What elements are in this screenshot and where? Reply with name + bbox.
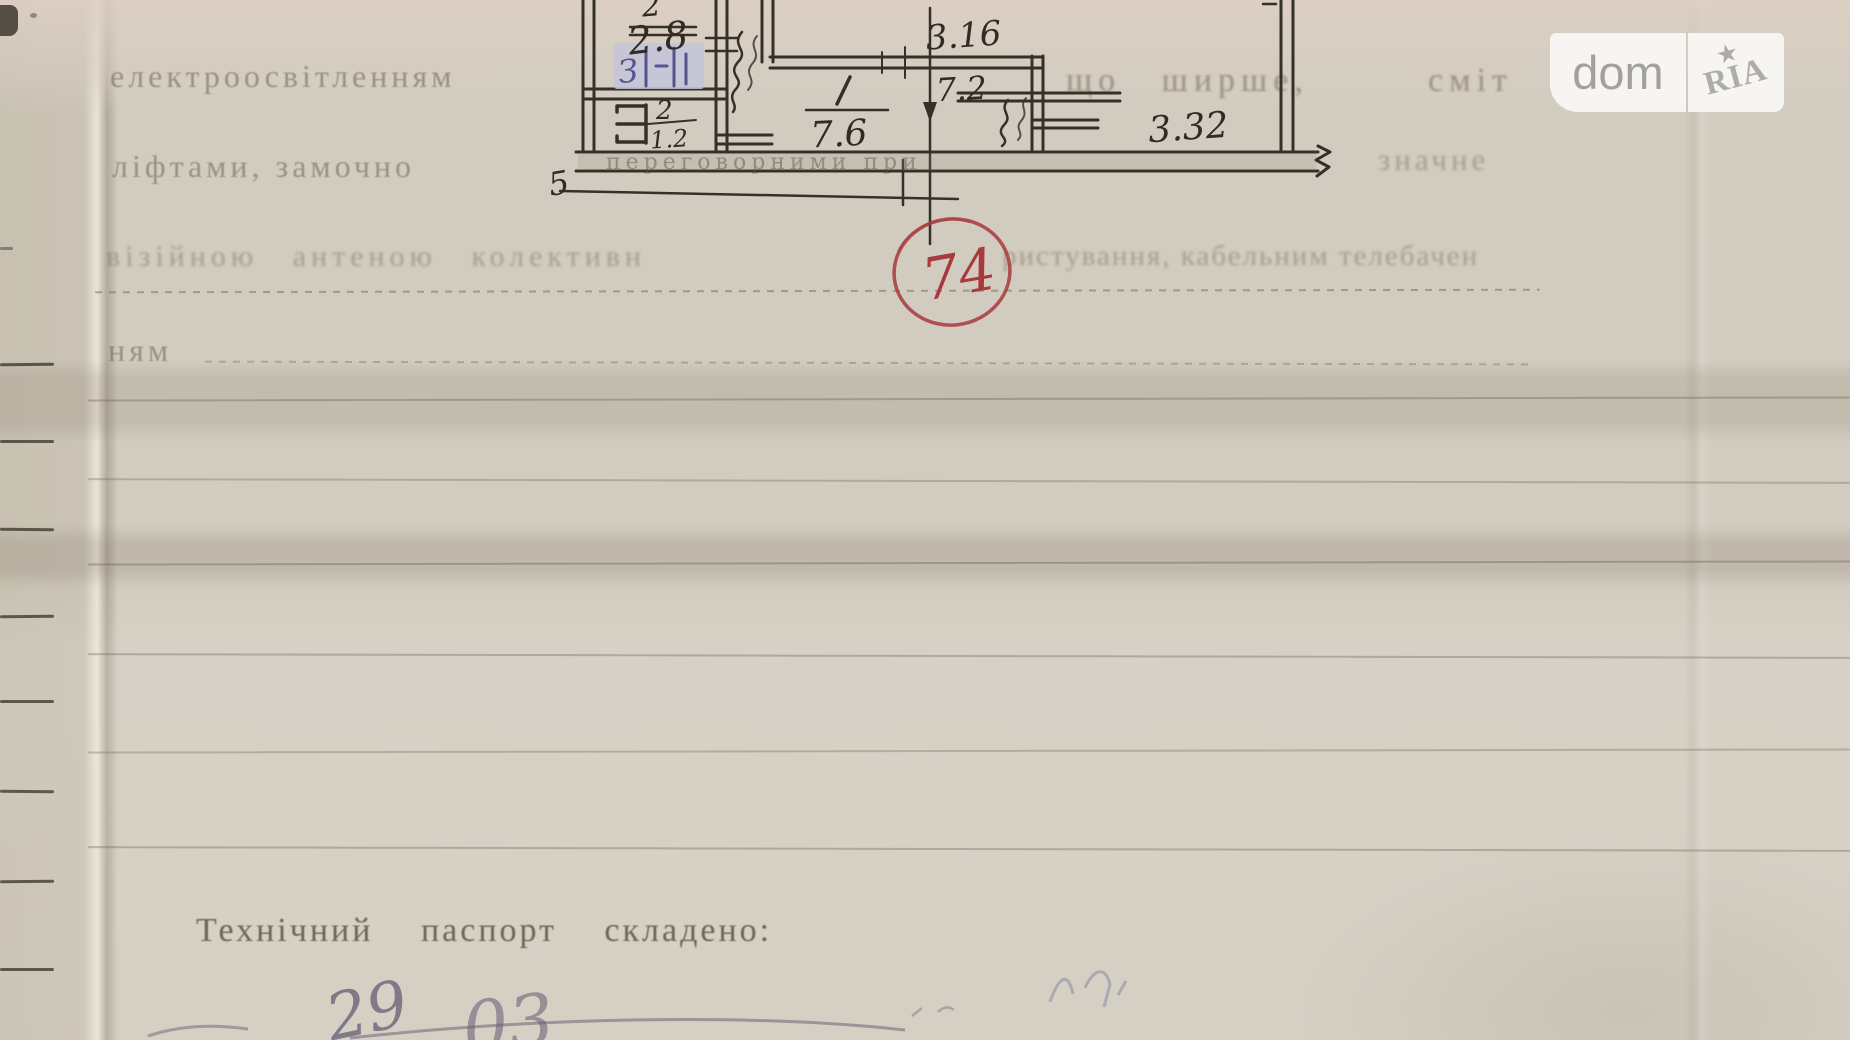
red-stamp: 74 (887, 211, 1017, 332)
closet-num: 2 (655, 96, 673, 126)
hand-underline (350, 1020, 905, 1038)
watermark-ria-box: ★ RIA (1688, 33, 1784, 112)
bottom-handwriting: 29 03 (0, 940, 1850, 1040)
faint-handwriting (1050, 972, 1126, 1007)
typed-line1-left: електроосвітленням (110, 58, 455, 95)
dim-332: 3.32 (1147, 105, 1230, 151)
dotted-rule-line (205, 361, 1530, 366)
floor-plan-drawing: переговорними при З 2 2.8 2 1.2 3.16 7.6… (440, 0, 1360, 340)
typed-line2-left: ліфтами, замочно (112, 148, 415, 185)
typed-line4: ням (108, 332, 172, 369)
watermark-dom-box: dom (1550, 33, 1686, 112)
typed-line2-right: значне (1378, 142, 1489, 178)
rule-line (88, 846, 1850, 852)
section-mark: 5 (545, 163, 572, 204)
hand-curve-left (148, 1026, 248, 1036)
section-arrow (923, 102, 937, 122)
closet-area: 1.2 (649, 124, 689, 155)
corner-ink-blob (0, 5, 18, 36)
hand-small-marks (912, 1007, 954, 1016)
rule-line (88, 560, 1850, 565)
hand-month: 03 (458, 977, 559, 1040)
rule-line (88, 653, 1850, 659)
typed-line1-right: сміт (1428, 62, 1513, 100)
corner-ink-dot (30, 13, 37, 18)
rule-line (88, 748, 1850, 753)
dim-room-small: 2.8 (624, 12, 690, 63)
hand-day: 29 (319, 967, 415, 1040)
watermark: dom ★ RIA (1550, 33, 1784, 112)
dim-316: 3.16 (924, 13, 1002, 58)
rule-line (88, 478, 1850, 484)
watermark-ria-label: RIA (1701, 51, 1772, 103)
dim-72: 7.2 (935, 69, 988, 110)
rule-line (88, 396, 1850, 401)
room1-area: 7.6 (809, 113, 868, 157)
watermark-dom-label: dom (1572, 45, 1663, 100)
stamp-number: 74 (917, 235, 1001, 315)
scanned-technical-passport-page: електроосвітленням що ширше, сміт ліфтам… (0, 0, 1850, 1040)
